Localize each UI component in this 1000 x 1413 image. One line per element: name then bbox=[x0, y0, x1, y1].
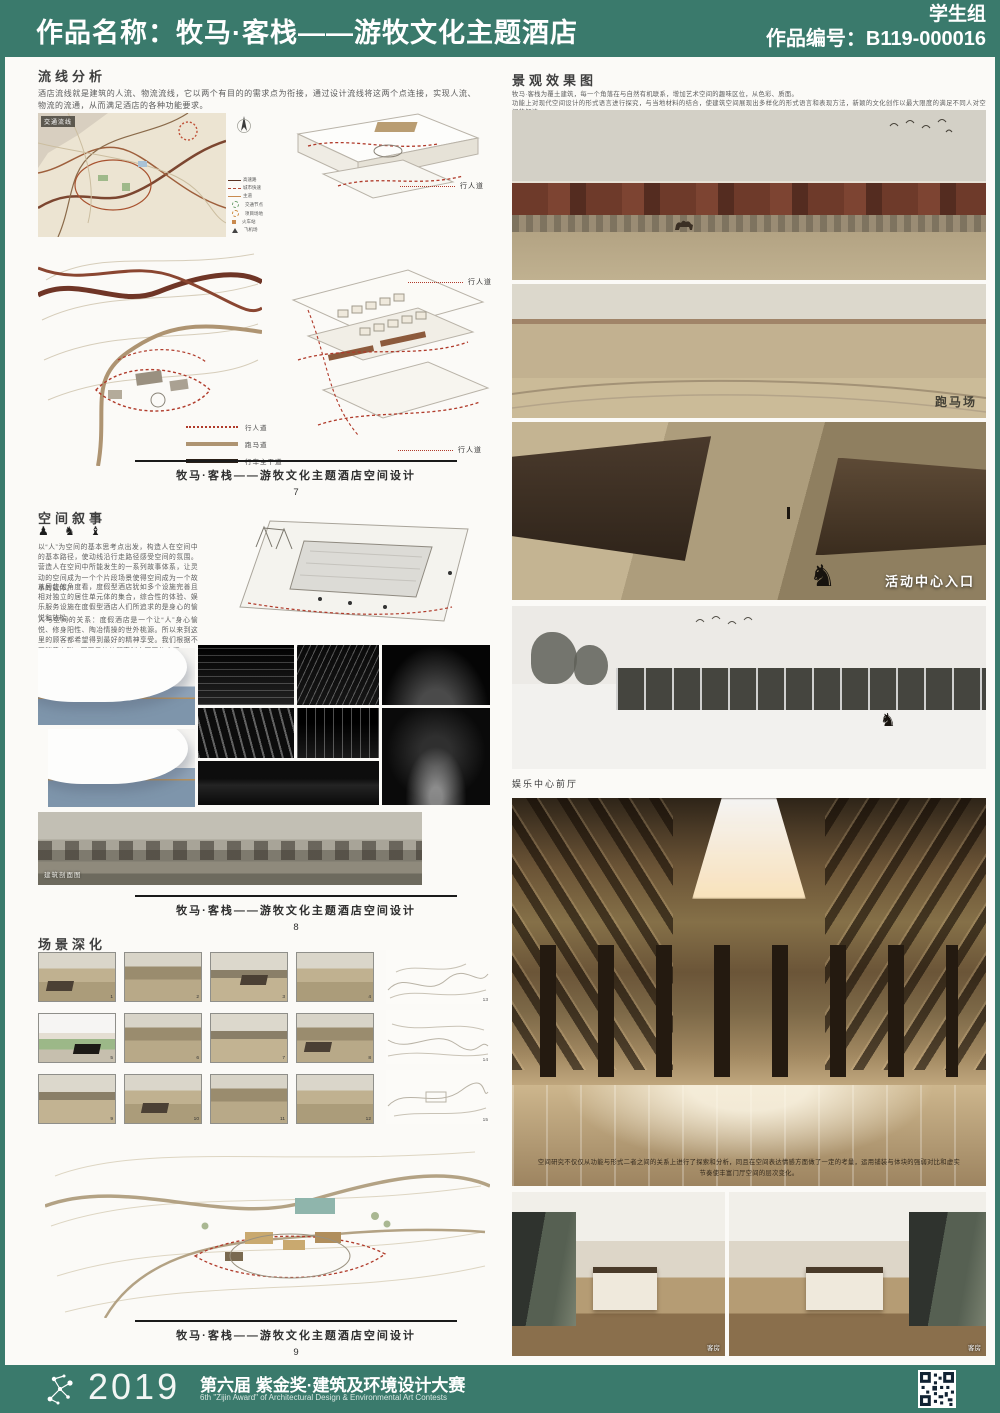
header-right: 学生组 作品编号：B119-000016 bbox=[766, 3, 986, 52]
group-label: 学生组 bbox=[766, 3, 986, 27]
caption-7: 牧马·客栈——游牧文化主题酒店空间设计 7 bbox=[135, 460, 457, 498]
scene-number: 12 bbox=[366, 1117, 371, 1122]
scene-thumbnail: 8 bbox=[296, 1013, 374, 1063]
render-grassland-village bbox=[512, 110, 986, 280]
traffic-map-roads bbox=[38, 113, 226, 237]
scene-number: 6 bbox=[196, 1056, 199, 1061]
scene-number: 14 bbox=[483, 1058, 488, 1063]
track-curves bbox=[512, 364, 986, 414]
scene-row: 5 6 7 8 bbox=[38, 1013, 378, 1063]
work-title: 作品名称：牧马·客栈——游牧文化主题酒店 bbox=[36, 11, 578, 50]
caption-rule bbox=[135, 895, 457, 897]
legend-row: 主道 bbox=[228, 193, 263, 199]
footer-bar: 2019 第六届 紫金奖·建筑及环境设计大赛 6th "Zijin Award"… bbox=[0, 1365, 1000, 1413]
axon-label-text: 行人道 bbox=[468, 277, 492, 287]
right-edge-border bbox=[995, 0, 1000, 1413]
render-activity-entrance: ♞ 活动中心入口 bbox=[512, 422, 986, 600]
earth-wall-left bbox=[512, 436, 711, 561]
header-bar: 作品名称：牧马·客栈——游牧文化主题酒店 学生组 作品编号：B119-00001… bbox=[0, 0, 1000, 57]
scene-number: 1 bbox=[110, 995, 113, 1000]
legend-row: 火车站 bbox=[228, 219, 263, 225]
scene-row: 1 2 3 4 bbox=[38, 952, 378, 1002]
interior-study-tile bbox=[382, 708, 490, 805]
scene-number: 7 bbox=[282, 1056, 285, 1061]
figure-icons: ♟ ♞ ♝ bbox=[38, 524, 107, 538]
scene-thumbnail: 3 bbox=[210, 952, 288, 1002]
scene-thumbnail: 7 bbox=[210, 1013, 288, 1063]
caption-text: 牧马·客栈——游牧文化主题酒店空间设计 bbox=[135, 1327, 457, 1343]
stone-wall-band bbox=[512, 215, 986, 232]
scene-thumbnail: 12 bbox=[296, 1074, 374, 1124]
axon-label-3: 行人道 bbox=[398, 445, 482, 455]
sketch-lines bbox=[386, 950, 490, 1004]
legend-label: 火车站 bbox=[242, 219, 256, 225]
page-number: 8 bbox=[135, 922, 457, 933]
scene-number: 10 bbox=[194, 1117, 199, 1122]
legend-label: 项目场地 bbox=[245, 211, 263, 217]
playground-axon-drawing bbox=[200, 503, 498, 643]
sketch-lines bbox=[386, 1070, 490, 1124]
concept-render-1 bbox=[38, 648, 195, 725]
earth-buildings-band bbox=[512, 181, 986, 217]
interior-study-tile bbox=[297, 708, 379, 758]
room-label: 客房 bbox=[707, 1342, 720, 1352]
room-bed bbox=[593, 1267, 657, 1309]
dotted-leader bbox=[400, 186, 455, 187]
scene-number: 15 bbox=[483, 1118, 488, 1123]
flow-analysis-heading: 流线分析 bbox=[38, 66, 106, 85]
masterplan-drawing bbox=[45, 1136, 490, 1318]
dark-interior-mosaic bbox=[198, 645, 490, 805]
legend-label: 跑马道 bbox=[245, 439, 268, 449]
scene-number: 9 bbox=[110, 1117, 113, 1122]
traffic-map: 交通流线 高速路 城市快速 主道 交通节点 项目场地 火车站 飞机场 bbox=[38, 113, 262, 237]
birds-icon bbox=[886, 118, 956, 138]
interior-study-tile bbox=[198, 645, 294, 705]
horse-silhouette: ♞ bbox=[880, 710, 896, 731]
axonometric-diagram-2 bbox=[268, 240, 498, 464]
legend-row: 跑马道 bbox=[186, 439, 283, 449]
scene-thumbnail: 5 bbox=[38, 1013, 116, 1063]
lobby-note-text: 空间研究不仅仅从功能与形式二者之间的关系上进行了探索和分析，同且在空间表达情感方… bbox=[536, 1158, 963, 1179]
room-window bbox=[909, 1212, 986, 1327]
scene-number: 2 bbox=[196, 995, 199, 1000]
axon-label-1: 行人道 bbox=[400, 181, 484, 191]
scene-thumbnail: 2 bbox=[124, 952, 202, 1002]
scene-number: 13 bbox=[483, 998, 488, 1003]
legend-label: 城市快速 bbox=[243, 185, 261, 191]
room-window bbox=[512, 1212, 576, 1327]
legend-row: 行人道 bbox=[186, 422, 283, 432]
camel-silhouette bbox=[673, 217, 695, 231]
legend-label: 高速路 bbox=[243, 177, 257, 183]
traffic-map-sidebar: 高速路 城市快速 主道 交通节点 项目场地 火车站 飞机场 bbox=[226, 113, 262, 237]
work-number: 作品编号：B119-000016 bbox=[766, 27, 986, 52]
footer-year: 2019 bbox=[88, 1366, 180, 1408]
tree-silhouette bbox=[574, 645, 608, 685]
caption-rule bbox=[135, 1320, 457, 1322]
scene-row: 9 10 11 12 bbox=[38, 1074, 378, 1124]
legend-label: 飞机场 bbox=[244, 227, 258, 233]
render-entertainment-entrance: ♞ bbox=[512, 606, 986, 769]
left-edge-border bbox=[0, 0, 5, 1413]
legend-row: 交通节点 bbox=[228, 201, 263, 208]
scene-thumbnail: 6 bbox=[124, 1013, 202, 1063]
sketch-thumbnail: 14 bbox=[386, 1010, 490, 1064]
scene-thumbnail: 11 bbox=[210, 1074, 288, 1124]
scene-thumbnail: 10 bbox=[124, 1074, 202, 1124]
room-bed bbox=[806, 1267, 883, 1309]
sketch-column: 13 14 15 bbox=[386, 950, 490, 1130]
section-building-band bbox=[38, 841, 422, 860]
caption-8: 牧马·客栈——游牧文化主题酒店空间设计 8 bbox=[135, 895, 457, 933]
scene-number: 5 bbox=[110, 1056, 113, 1061]
interior-study-tile bbox=[382, 645, 490, 705]
traffic-map-legend: 高速路 城市快速 主道 交通节点 项目场地 火车站 飞机场 bbox=[228, 175, 263, 233]
room-render-2: 客房 bbox=[729, 1192, 986, 1356]
zijin-award-logo bbox=[42, 1371, 78, 1407]
interior-study-tile bbox=[198, 708, 294, 758]
scenes-heading: 场景深化 bbox=[38, 934, 106, 953]
legend-row: 飞机场 bbox=[228, 227, 263, 233]
caption-text: 牧马·客栈——游牧文化主题酒店空间设计 bbox=[135, 467, 457, 483]
render-racecourse: 跑马场 bbox=[512, 284, 986, 418]
legend-label: 交通节点 bbox=[245, 202, 263, 208]
lobby-skylight bbox=[692, 798, 806, 899]
renderings-heading: 景观效果图 bbox=[512, 70, 597, 89]
birds-icon bbox=[692, 614, 762, 630]
axon-label-text: 行人道 bbox=[458, 445, 482, 455]
sketch-thumbnail: 13 bbox=[386, 950, 490, 1004]
page-number: 9 bbox=[135, 1347, 457, 1358]
legend-label: 行人道 bbox=[245, 422, 268, 432]
activity-entrance-label: 活动中心入口 bbox=[885, 571, 975, 590]
figure-silhouette bbox=[787, 507, 790, 519]
traffic-map-label: 交通流线 bbox=[41, 116, 75, 127]
qr-pattern bbox=[920, 1372, 954, 1406]
interior-study-tile bbox=[198, 761, 379, 805]
legend-row: 项目场地 bbox=[228, 210, 263, 217]
scene-thumbnail: 4 bbox=[296, 952, 374, 1002]
scene-number: 11 bbox=[280, 1117, 285, 1122]
legend-label: 主道 bbox=[243, 193, 252, 199]
axon-label-2: 行人道 bbox=[408, 277, 492, 287]
scene-thumbnail: 1 bbox=[38, 952, 116, 1002]
lobby-render: 空间研究不仅仅从功能与形式二者之间的关系上进行了探索和分析，同且在空间表达情感方… bbox=[512, 798, 986, 1186]
sketch-lines bbox=[386, 1010, 490, 1064]
dotted-leader bbox=[408, 282, 463, 283]
front-hall-label: 娱乐中心前厅 bbox=[512, 777, 578, 790]
entertainment-building-band bbox=[616, 668, 986, 710]
traffic-map-art: 交通流线 bbox=[38, 113, 226, 237]
legend-row: 城市快速 bbox=[228, 185, 263, 191]
scene-number: 3 bbox=[282, 995, 285, 1000]
racecourse-label: 跑马场 bbox=[935, 393, 977, 410]
legend-row: 高速路 bbox=[228, 177, 263, 183]
foreground-ground bbox=[512, 232, 986, 280]
concept-render-2 bbox=[48, 729, 195, 807]
compass-icon bbox=[236, 116, 252, 134]
interior-study-tile bbox=[297, 645, 379, 705]
path-type-legend: 行人道 跑马道 行车主干道 bbox=[186, 415, 283, 466]
scene-thumbnail: 9 bbox=[38, 1074, 116, 1124]
building-section-image: 建筑剖面图 bbox=[38, 812, 422, 885]
scene-number: 8 bbox=[368, 1056, 371, 1061]
axon-label-text: 行人道 bbox=[460, 181, 484, 191]
footer-subtitle: 6th "Zijin Award" of Architectural Desig… bbox=[200, 1393, 447, 1402]
lobby-columns bbox=[540, 945, 957, 1077]
caption-text: 牧马·客栈——游牧文化主题酒店空间设计 bbox=[135, 902, 457, 918]
sketch-thumbnail: 15 bbox=[386, 1070, 490, 1124]
caption-rule bbox=[135, 460, 457, 462]
caption-9: 牧马·客栈——游牧文化主题酒店空间设计 9 bbox=[135, 1320, 457, 1358]
scene-number: 4 bbox=[368, 995, 371, 1000]
axonometric-diagram-1 bbox=[268, 96, 490, 236]
page-number: 7 bbox=[135, 487, 457, 498]
room-render-1: 客房 bbox=[512, 1192, 725, 1356]
scene-grid: 1 2 3 4 5 6 7 8 9 10 11 12 bbox=[38, 952, 378, 1135]
room-label: 客房 bbox=[968, 1342, 981, 1352]
tree-silhouette bbox=[531, 632, 577, 684]
building-section-label: 建筑剖面图 bbox=[44, 869, 82, 879]
horse-silhouette: ♞ bbox=[809, 559, 836, 594]
qr-code bbox=[918, 1370, 956, 1408]
earth-wall-right bbox=[815, 458, 986, 556]
dotted-leader bbox=[398, 450, 453, 451]
poster: 作品名称：牧马·客栈——游牧文化主题酒店 学生组 作品编号：B119-00001… bbox=[0, 0, 1000, 1413]
